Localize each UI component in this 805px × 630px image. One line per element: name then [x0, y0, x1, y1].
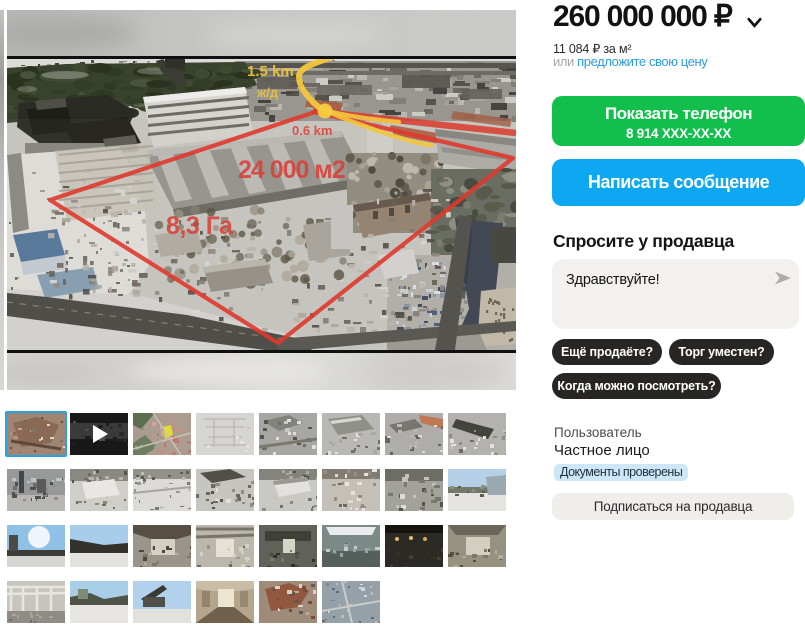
- svg-text:1.5 km: 1.5 km: [247, 63, 294, 80]
- svg-text:24 000 м2: 24 000 м2: [238, 156, 345, 184]
- svg-text:ж/д: ж/д: [256, 85, 279, 100]
- svg-text:0.6 km: 0.6 km: [292, 123, 332, 138]
- svg-text:8,3 Га: 8,3 Га: [166, 212, 234, 240]
